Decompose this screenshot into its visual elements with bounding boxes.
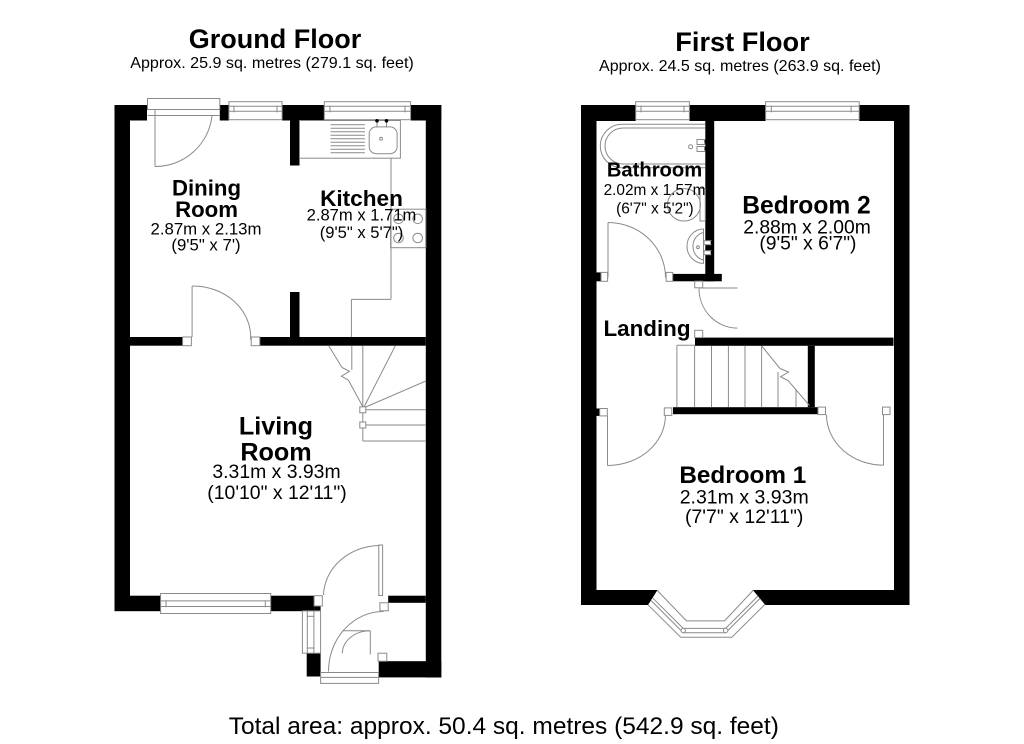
svg-text:Bedroom 1: Bedroom 1 [679,462,806,489]
svg-text:First Floor: First Floor [675,26,810,57]
svg-text:Living: Living [239,413,313,441]
svg-text:Bathroom: Bathroom [607,160,702,182]
svg-text:Landing: Landing [603,316,690,341]
svg-text:Ground Floor: Ground Floor [189,24,362,54]
svg-text:(9'5" x 5'7"): (9'5" x 5'7") [320,223,404,242]
svg-text:(9'5" x 7'): (9'5" x 7') [171,236,240,255]
svg-text:Approx. 24.5 sq. metres (263.9: Approx. 24.5 sq. metres (263.9 sq. feet) [599,58,881,75]
svg-text:Bedroom 2: Bedroom 2 [742,193,870,220]
svg-text:(9'5" x 6'7"): (9'5" x 6'7") [759,234,856,255]
svg-text:Approx. 25.9 sq. metres (279.1: Approx. 25.9 sq. metres (279.1 sq. feet) [130,54,414,72]
svg-text:3.31m x 3.93m: 3.31m x 3.93m [212,461,340,483]
svg-text:(10'10" x 12'11"): (10'10" x 12'11") [207,482,346,504]
svg-text:2.02m x 1.57m: 2.02m x 1.57m [604,182,706,199]
svg-text:(6'7" x 5'2"): (6'7" x 5'2") [616,200,694,217]
svg-text:(7'7" x 12'11"): (7'7" x 12'11") [685,506,804,528]
svg-text:2.87m x 1.71m: 2.87m x 1.71m [307,205,417,224]
svg-text:Total area: approx. 50.4 sq. m: Total area: approx. 50.4 sq. metres (542… [229,713,779,740]
